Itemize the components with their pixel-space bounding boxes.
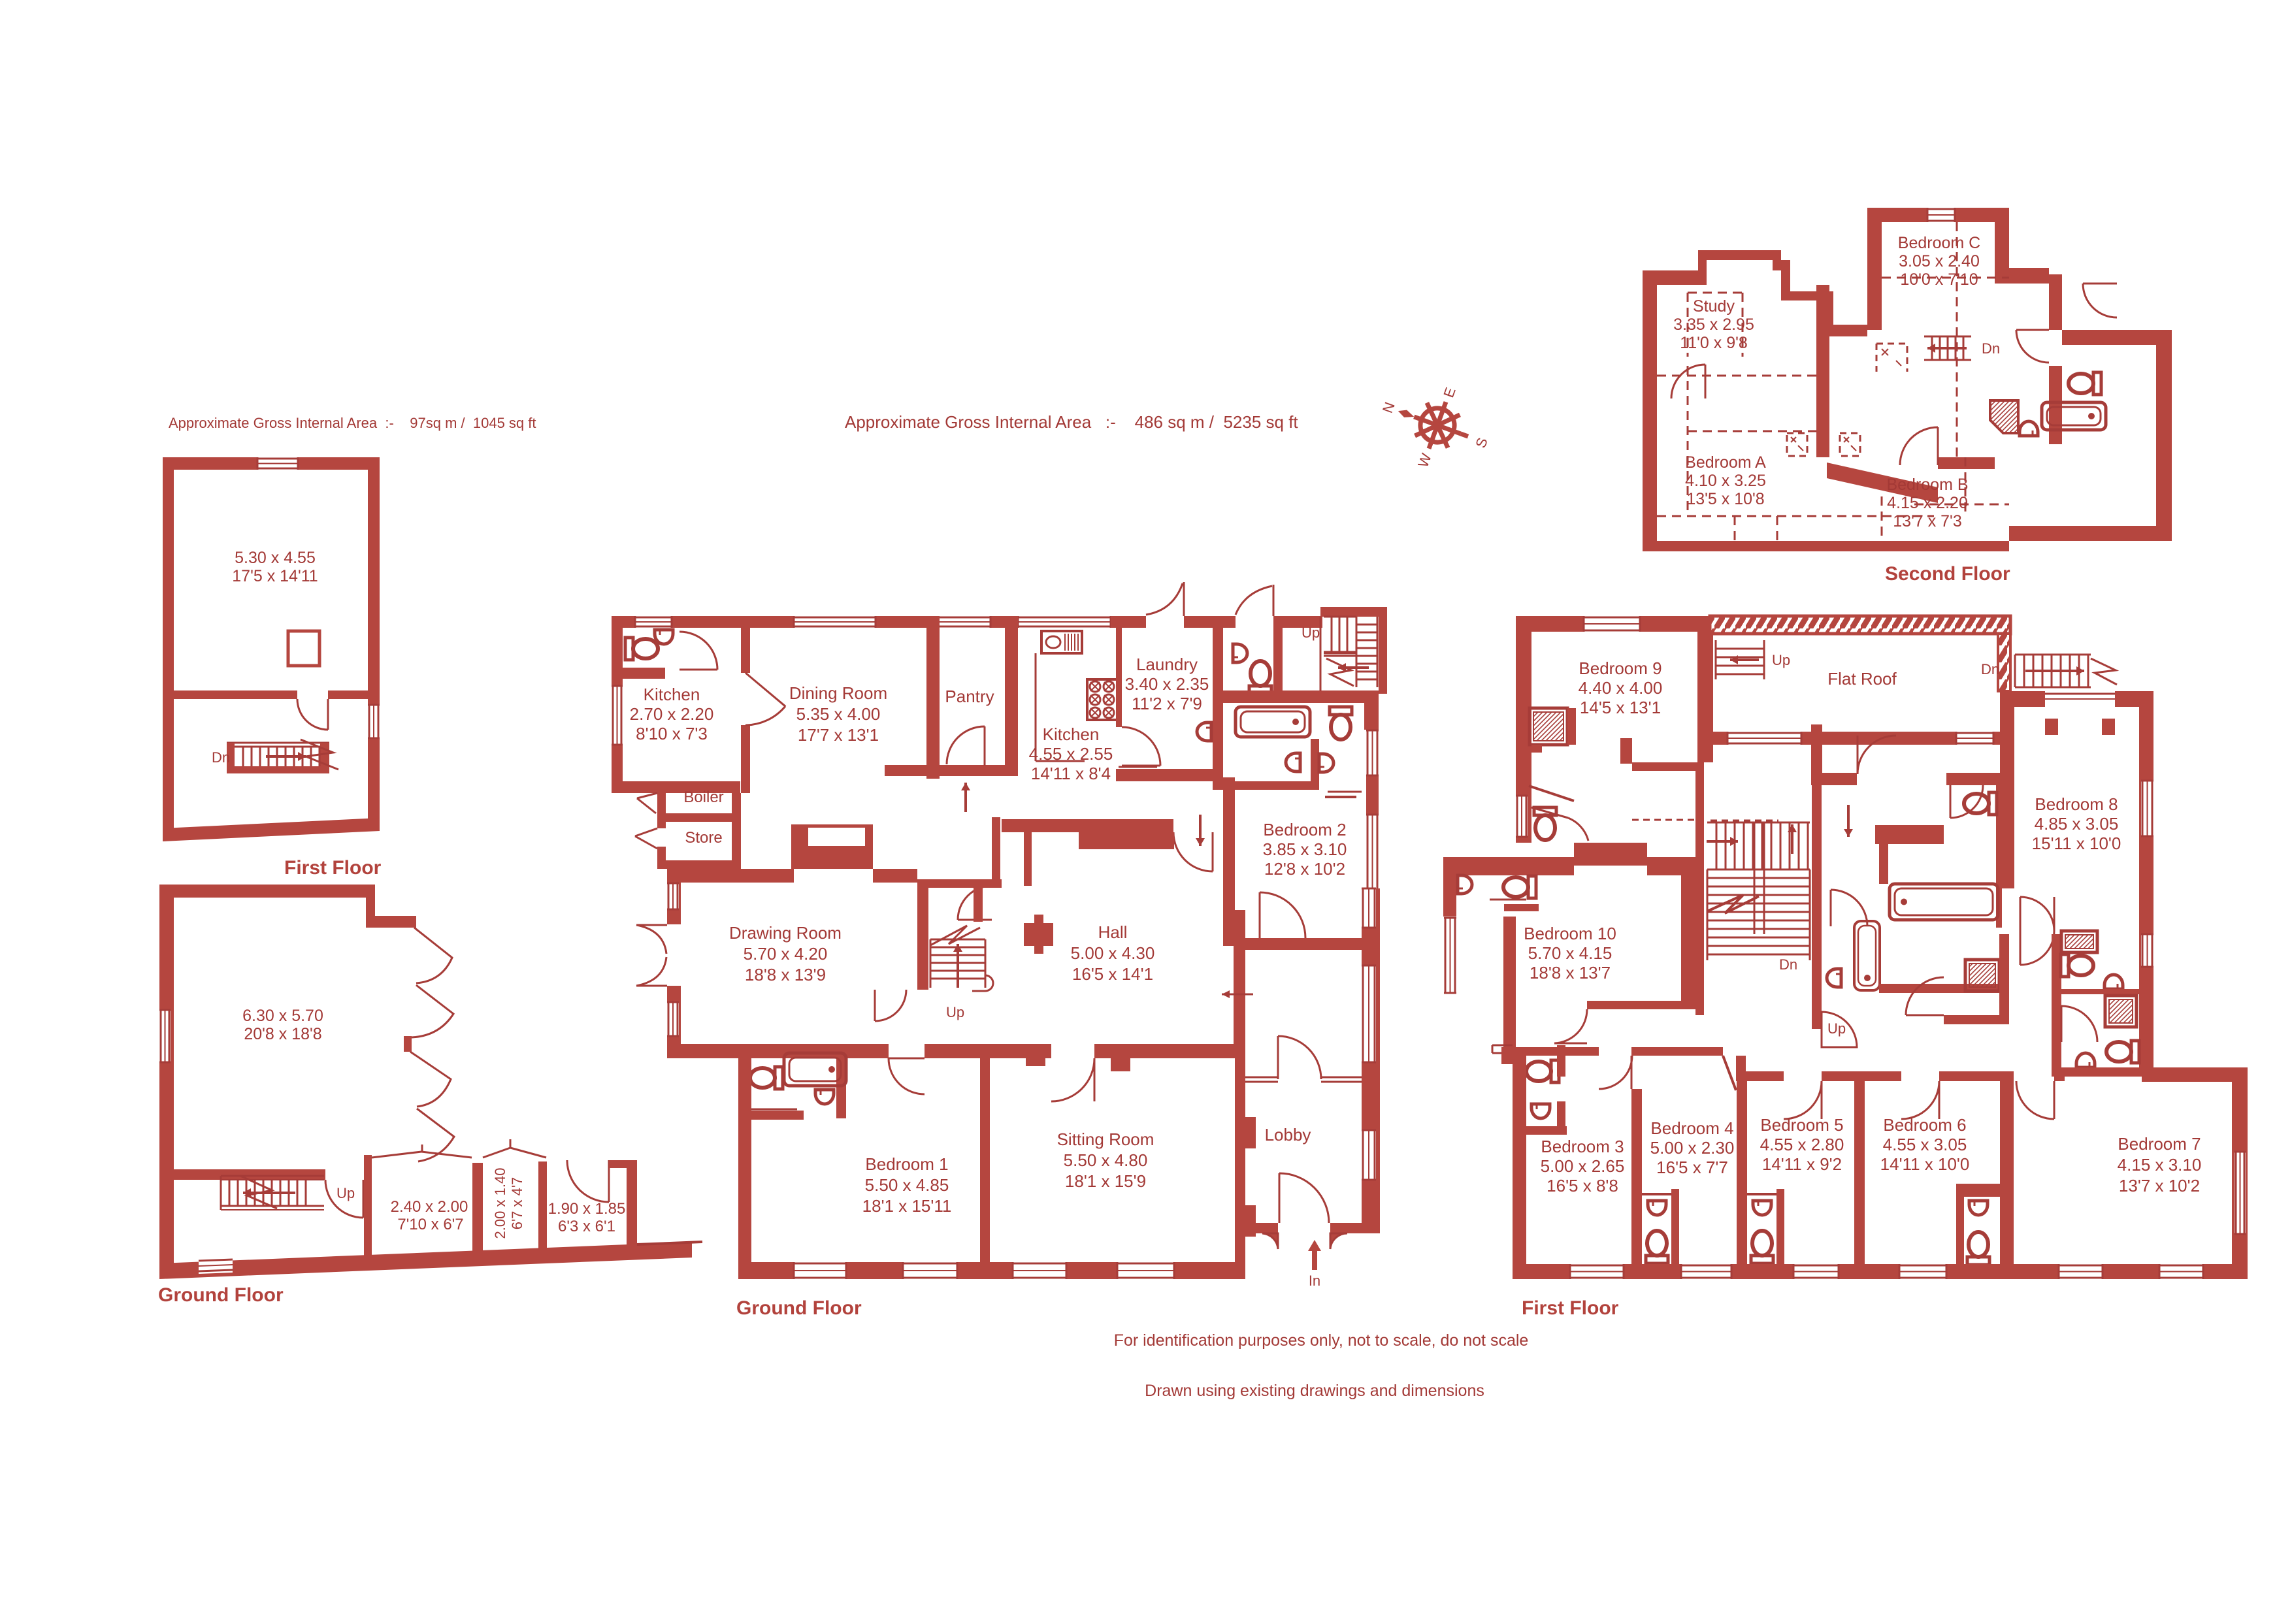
svg-text:6'3 x 6'1: 6'3 x 6'1 xyxy=(558,1218,615,1235)
svg-text:2.70 x 2.20: 2.70 x 2.20 xyxy=(630,704,714,724)
svg-text:11'2 x 7'9: 11'2 x 7'9 xyxy=(1132,694,1202,713)
svg-text:5.70 x 4.20: 5.70 x 4.20 xyxy=(744,944,828,964)
svg-text:17'7 x 13'1: 17'7 x 13'1 xyxy=(798,725,879,745)
svg-text:Approximate Gross Internal Are: Approximate Gross Internal Area :- 97sq … xyxy=(169,415,536,431)
svg-text:18'8 x 13'7: 18'8 x 13'7 xyxy=(1530,963,1611,983)
svg-text:18'1 x 15'11: 18'1 x 15'11 xyxy=(862,1196,952,1216)
svg-text:13'5 x 10'8: 13'5 x 10'8 xyxy=(1686,490,1764,508)
svg-text:15'11 x 10'0: 15'11 x 10'0 xyxy=(2032,834,2121,853)
svg-text:3.85 x 3.10: 3.85 x 3.10 xyxy=(1263,839,1347,859)
svg-text:Up: Up xyxy=(1302,625,1320,641)
svg-text:Second Floor: Second Floor xyxy=(1885,563,2010,585)
svg-text:3.05 x 2.40: 3.05 x 2.40 xyxy=(1899,252,1980,270)
svg-text:Bedroom B: Bedroom B xyxy=(1886,476,1968,494)
svg-text:Approximate Gross Internal Are: Approximate Gross Internal Area :- 486 s… xyxy=(845,412,1298,432)
svg-text:14'5 x 13'1: 14'5 x 13'1 xyxy=(1580,698,1661,717)
svg-text:Dn: Dn xyxy=(1779,956,1797,973)
svg-text:10'0 x 7'10: 10'0 x 7'10 xyxy=(1900,270,1978,289)
svg-text:Lobby: Lobby xyxy=(1265,1125,1311,1145)
svg-text:5.70 x 4.15: 5.70 x 4.15 xyxy=(1528,943,1613,963)
svg-text:Bedroom 9: Bedroom 9 xyxy=(1579,658,1662,678)
svg-text:First Floor: First Floor xyxy=(284,857,382,879)
svg-text:5.35 x 4.00: 5.35 x 4.00 xyxy=(796,704,881,724)
svg-text:4.15 x 2.20: 4.15 x 2.20 xyxy=(1887,494,1968,512)
svg-text:Dn: Dn xyxy=(212,749,230,766)
svg-text:13'7 x 10'2: 13'7 x 10'2 xyxy=(2119,1176,2200,1195)
svg-text:Store: Store xyxy=(685,829,722,847)
svg-text:Bedroom 7: Bedroom 7 xyxy=(2118,1134,2201,1154)
svg-text:5.50 x 4.80: 5.50 x 4.80 xyxy=(1064,1150,1148,1170)
svg-text:Hall: Hall xyxy=(1098,922,1128,942)
svg-text:Bedroom 5: Bedroom 5 xyxy=(1760,1115,1843,1135)
svg-text:First Floor: First Floor xyxy=(1522,1297,1619,1319)
svg-text:Ground Floor: Ground Floor xyxy=(158,1284,284,1306)
svg-text:16'5 x 14'1: 16'5 x 14'1 xyxy=(1072,964,1153,984)
svg-text:Boiler: Boiler xyxy=(683,788,723,806)
svg-text:Bedroom 1: Bedroom 1 xyxy=(865,1154,948,1174)
svg-text:14'11 x 9'2: 14'11 x 9'2 xyxy=(1762,1154,1842,1174)
svg-text:Ground Floor: Ground Floor xyxy=(736,1297,862,1319)
svg-text:16'5 x 8'8: 16'5 x 8'8 xyxy=(1547,1176,1618,1195)
svg-text:16'5 x 7'7: 16'5 x 7'7 xyxy=(1656,1158,1728,1177)
svg-text:Bedroom C: Bedroom C xyxy=(1898,234,1980,252)
svg-text:6.30 x 5.70: 6.30 x 5.70 xyxy=(242,1007,323,1025)
svg-text:14'11 x 10'0: 14'11 x 10'0 xyxy=(1880,1154,1970,1174)
svg-text:Bedroom 8: Bedroom 8 xyxy=(2035,794,2118,814)
svg-text:4.55 x 2.80: 4.55 x 2.80 xyxy=(1760,1135,1844,1154)
svg-text:Bedroom 6: Bedroom 6 xyxy=(1883,1115,1966,1135)
svg-text:For identification purposes on: For identification purposes only, not to… xyxy=(1114,1331,1529,1350)
svg-text:17'5 x 14'11: 17'5 x 14'11 xyxy=(232,567,318,585)
svg-text:Bedroom 3: Bedroom 3 xyxy=(1541,1137,1624,1156)
svg-text:Drawing Room: Drawing Room xyxy=(729,923,842,943)
svg-text:Kitchen: Kitchen xyxy=(644,685,700,704)
svg-text:3.40 x 2.35: 3.40 x 2.35 xyxy=(1125,674,1209,694)
svg-text:In: In xyxy=(1309,1273,1320,1289)
svg-text:13'7 x 7'3: 13'7 x 7'3 xyxy=(1893,512,1961,530)
svg-text:4.40 x 4.00: 4.40 x 4.00 xyxy=(1579,678,1663,698)
svg-text:Bedroom 4: Bedroom 4 xyxy=(1650,1118,1733,1138)
svg-text:Up: Up xyxy=(1827,1020,1846,1037)
svg-text:Drawn using existing drawings: Drawn using existing drawings and dimens… xyxy=(1145,1382,1484,1400)
svg-text:4.10 x 3.25: 4.10 x 3.25 xyxy=(1685,472,1766,490)
svg-text:Dn: Dn xyxy=(1981,661,1999,677)
svg-text:4.55 x 3.05: 4.55 x 3.05 xyxy=(1883,1135,1967,1154)
svg-text:4.55 x 2.55: 4.55 x 2.55 xyxy=(1029,744,1113,764)
svg-text:Bedroom A: Bedroom A xyxy=(1685,453,1766,472)
svg-text:Flat Roof: Flat Roof xyxy=(1827,669,1897,689)
svg-text:Study: Study xyxy=(1693,297,1735,316)
svg-text:Dining Room: Dining Room xyxy=(789,683,887,703)
svg-text:5.00 x 2.65: 5.00 x 2.65 xyxy=(1541,1156,1625,1176)
svg-text:4.85 x 3.05: 4.85 x 3.05 xyxy=(2035,814,2119,834)
svg-text:Pantry: Pantry xyxy=(945,687,994,706)
svg-text:5.00 x 2.30: 5.00 x 2.30 xyxy=(1650,1138,1735,1158)
svg-text:Bedroom 2: Bedroom 2 xyxy=(1263,820,1346,839)
svg-text:18'1 x 15'9: 18'1 x 15'9 xyxy=(1065,1171,1146,1191)
svg-text:8'10 x 7'3: 8'10 x 7'3 xyxy=(636,724,708,743)
svg-text:Bedroom 10: Bedroom 10 xyxy=(1524,924,1616,943)
svg-text:5.50 x 4.85: 5.50 x 4.85 xyxy=(865,1175,949,1195)
svg-text:18'8 x 13'9: 18'8 x 13'9 xyxy=(745,965,826,984)
svg-text:1.90 x 1.85: 1.90 x 1.85 xyxy=(548,1200,626,1218)
svg-text:14'11 x 8'4: 14'11 x 8'4 xyxy=(1031,764,1111,783)
svg-text:2.00 x 1.40: 2.00 x 1.40 xyxy=(492,1168,508,1239)
svg-text:5.00 x 4.30: 5.00 x 4.30 xyxy=(1071,943,1155,963)
svg-text:Dn: Dn xyxy=(1982,340,2000,357)
svg-text:12'8 x 10'2: 12'8 x 10'2 xyxy=(1264,859,1345,879)
svg-text:7'10 x 6'7: 7'10 x 6'7 xyxy=(397,1216,463,1233)
svg-text:Up: Up xyxy=(946,1004,964,1020)
svg-text:4.15 x 3.10: 4.15 x 3.10 xyxy=(2118,1155,2202,1175)
svg-text:Kitchen: Kitchen xyxy=(1043,724,1100,744)
svg-text:Up: Up xyxy=(336,1185,355,1201)
svg-text:Laundry: Laundry xyxy=(1136,655,1198,674)
svg-text:Up: Up xyxy=(1772,652,1790,668)
svg-text:20'8 x 18'8: 20'8 x 18'8 xyxy=(244,1025,321,1043)
svg-text:11'0 x 9'8: 11'0 x 9'8 xyxy=(1680,334,1748,352)
svg-text:5.30 x 4.55: 5.30 x 4.55 xyxy=(235,549,316,567)
svg-text:2.40 x 2.00: 2.40 x 2.00 xyxy=(391,1198,468,1216)
svg-text:6'7 x 4'7: 6'7 x 4'7 xyxy=(509,1177,525,1230)
svg-text:Sitting Room: Sitting Room xyxy=(1057,1129,1154,1149)
